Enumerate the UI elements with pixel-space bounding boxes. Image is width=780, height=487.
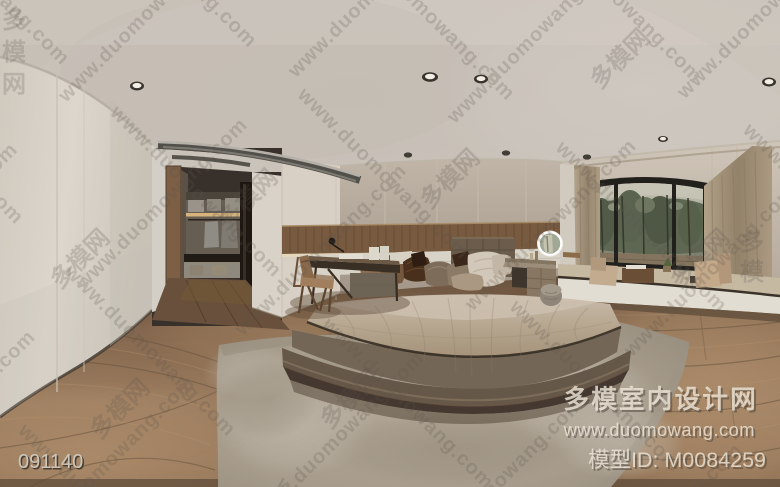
svg-text:模: 模 bbox=[740, 259, 765, 286]
svg-text:多模室内设计网: 多模室内设计网 bbox=[563, 385, 758, 414]
svg-text:多: 多 bbox=[740, 229, 764, 256]
svg-text:091140: 091140 bbox=[18, 451, 83, 473]
svg-text:模: 模 bbox=[2, 39, 27, 66]
svg-text:模型ID: M0084259: 模型ID: M0084259 bbox=[588, 448, 766, 472]
svg-text:网: 网 bbox=[2, 71, 26, 98]
svg-text:www.duomowang.com: www.duomowang.com bbox=[563, 419, 755, 440]
svg-text:多: 多 bbox=[2, 7, 26, 34]
